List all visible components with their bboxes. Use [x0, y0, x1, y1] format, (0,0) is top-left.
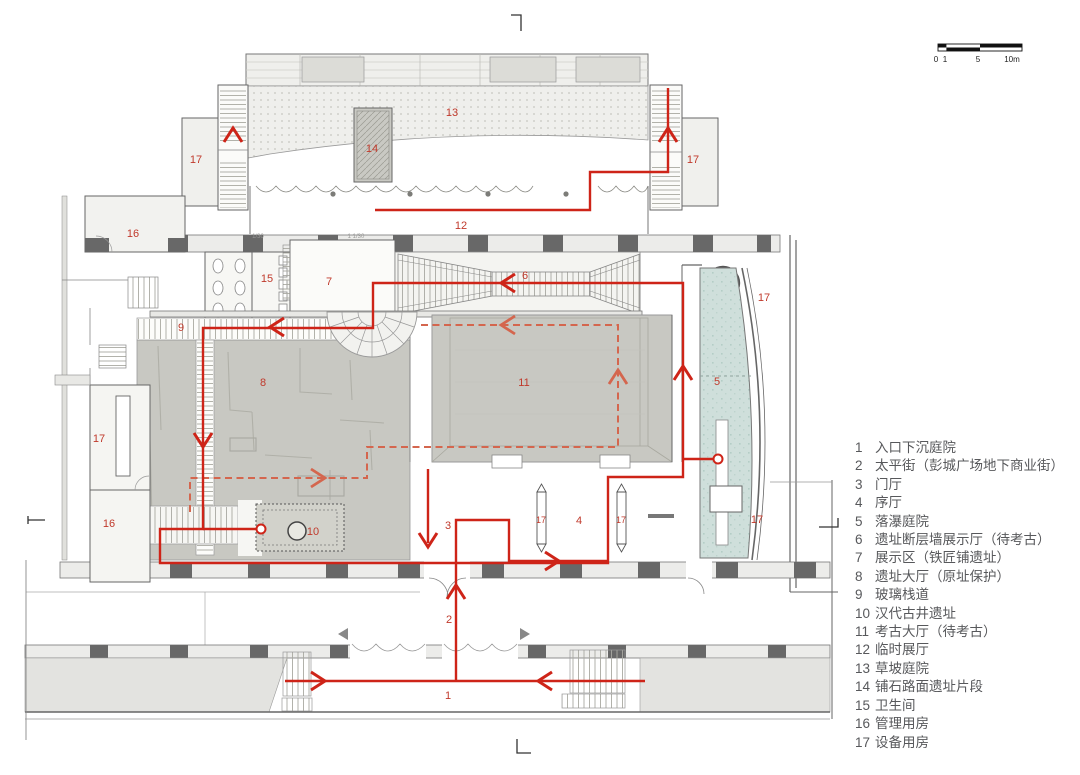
room-label: 16	[103, 518, 115, 530]
legend-item: 8遗址大厅（原址保护）	[855, 568, 1064, 586]
room-label: 10m	[1004, 55, 1020, 64]
legend-item: 12临时展厅	[855, 641, 1064, 659]
room-label: 17	[687, 154, 699, 166]
room-label: 15	[261, 273, 273, 285]
room-label: 16	[127, 228, 139, 240]
legend-item: 2太平街（彭城广场地下商业街）	[855, 457, 1064, 475]
scale-bar: 01510m	[934, 44, 1022, 64]
scale-labels: 01510m	[934, 55, 1020, 64]
legend-item: 5落瀑庭院	[855, 513, 1064, 531]
room-label: 5	[714, 376, 720, 388]
room-label: 6	[522, 270, 528, 282]
room-label: 1/30	[252, 234, 264, 240]
room-label: 17	[190, 154, 202, 166]
grass-courtyard-block	[182, 54, 718, 234]
room-label: 17	[93, 433, 105, 445]
vent-shafts	[537, 484, 674, 552]
legend-item: 4序厅	[855, 494, 1064, 512]
room-label: 17	[751, 514, 763, 526]
legend: 1入口下沉庭院2太平街（彭城广场地下商业街）3门厅4序厅5落瀑庭院6遗址断层墙展…	[855, 439, 1064, 752]
legend-item: 17设备用房	[855, 734, 1064, 752]
legend-item: 13草坡庭院	[855, 660, 1064, 678]
room-label: 5	[976, 55, 981, 64]
legend-item: 10汉代古井遗址	[855, 605, 1064, 623]
room-label: 4	[576, 515, 582, 527]
screenshot-root: 01510m 123456789101112131415161617171717…	[0, 0, 1080, 775]
room-label: 14	[366, 143, 378, 155]
legend-item: 11考古大厅（待考古）	[855, 623, 1064, 641]
room-label: 0	[934, 55, 939, 64]
legend-item: 3门厅	[855, 476, 1064, 494]
room-label: 12	[455, 220, 467, 232]
room-label: 17	[536, 515, 546, 525]
room-label: 3	[445, 520, 451, 532]
room-label: 11	[518, 377, 529, 389]
room-label: 13	[446, 107, 458, 119]
room-label: 1 1/30	[348, 234, 365, 240]
south-section	[25, 561, 830, 719]
room-label: 7	[326, 276, 332, 288]
room-label: 17	[758, 292, 770, 304]
room-label: 1	[943, 55, 948, 64]
legend-item: 7展示区（铁匠铺遗址）	[855, 549, 1064, 567]
room-label: 10	[307, 526, 319, 538]
room-label: 2	[446, 614, 452, 626]
legend-item: 16管理用房	[855, 715, 1064, 733]
legend-item: 14铺石路面遗址片段	[855, 678, 1064, 696]
north-wall-band	[85, 235, 780, 252]
legend-item: 6遗址断层墙展示厅（待考古）	[855, 531, 1064, 549]
legend-item: 15卫生间	[855, 697, 1064, 715]
legend-item: 9玻璃栈道	[855, 586, 1064, 604]
room-label: 17	[616, 515, 626, 525]
room-label: 1	[445, 690, 451, 702]
legend-item: 1入口下沉庭院	[855, 439, 1064, 457]
room-label: 8	[260, 377, 266, 389]
room-label: 9	[178, 322, 184, 334]
